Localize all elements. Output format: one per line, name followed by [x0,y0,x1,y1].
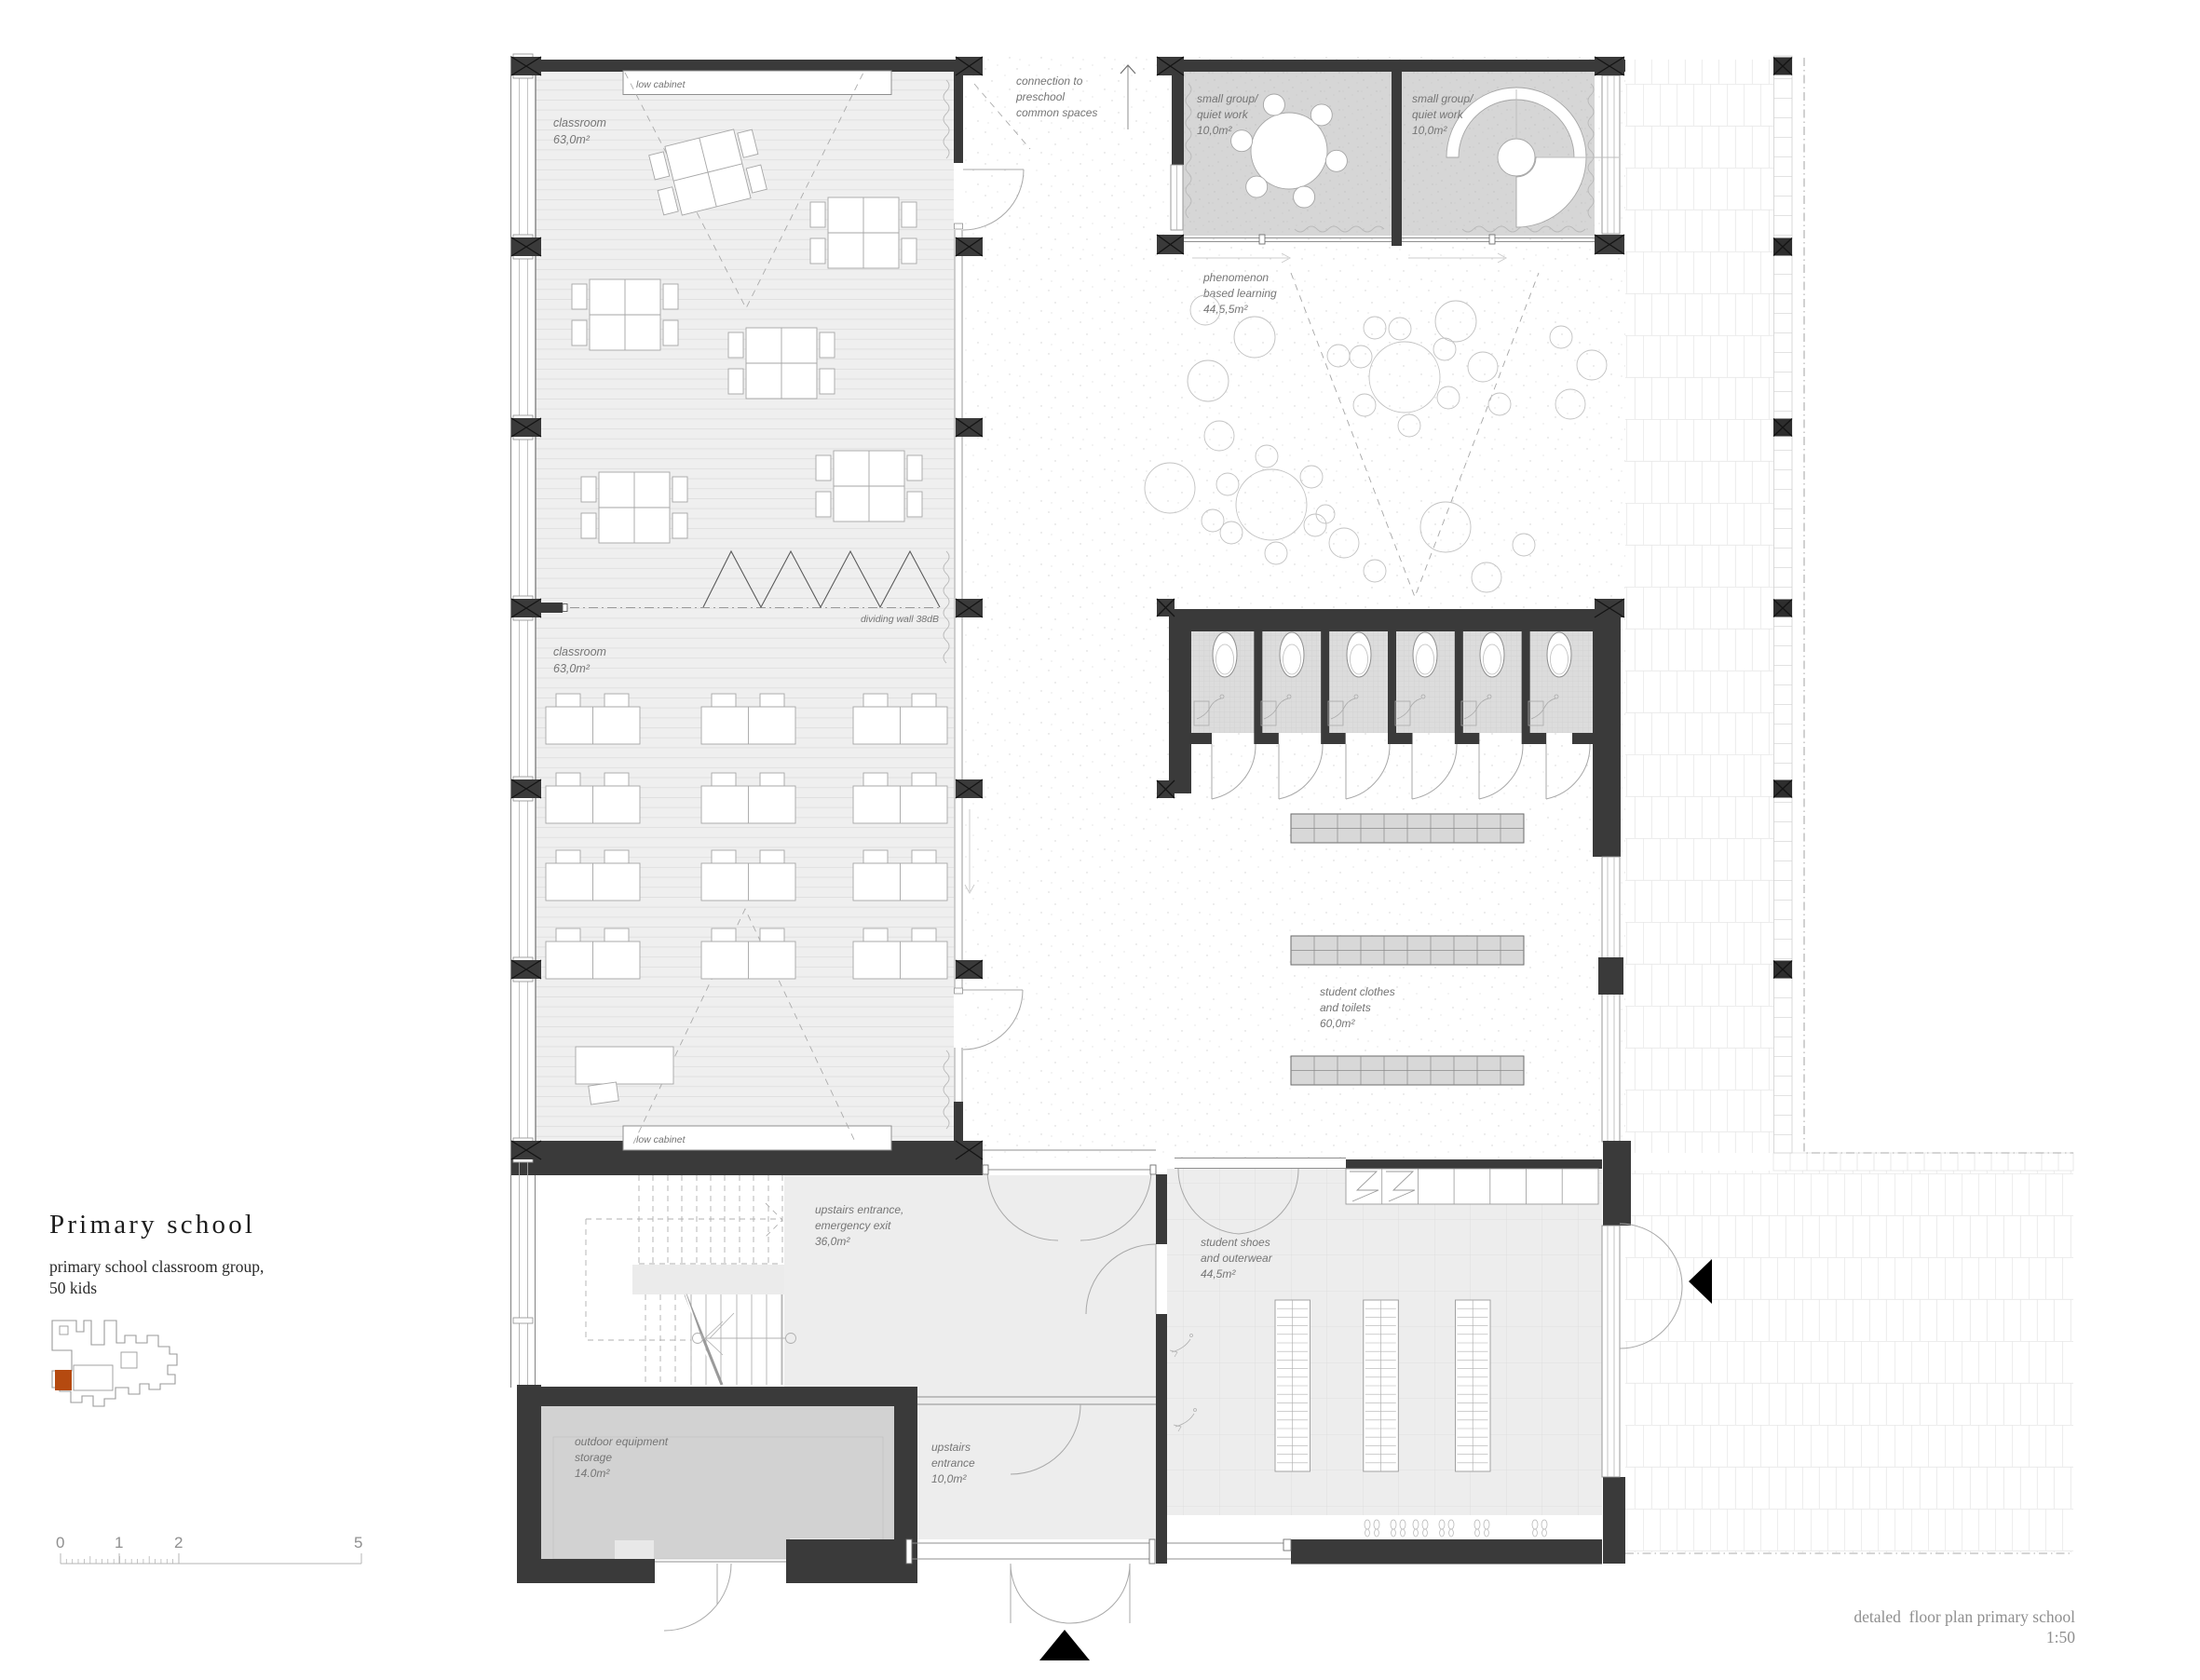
svg-text:connection to: connection to [1016,75,1083,88]
svg-text:low cabinet: low cabinet [636,79,686,90]
svg-text:student clothes: student clothes [1320,985,1395,998]
svg-text:Primary school: Primary school [49,1210,255,1240]
svg-text:student shoes: student shoes [1201,1236,1270,1249]
svg-text:14.0m²: 14.0m² [575,1467,610,1480]
svg-text:63,0m²: 63,0m² [553,662,591,675]
svg-text:common spaces: common spaces [1016,106,1097,119]
svg-text:detaled floor plan primary sc: detaled floor plan primary school [1854,1607,2075,1626]
svg-text:50 kids: 50 kids [49,1279,97,1297]
svg-text:1:50: 1:50 [2046,1628,2075,1646]
svg-text:10,0m²: 10,0m² [1197,124,1232,137]
svg-text:upstairs entrance,: upstairs entrance, [815,1203,903,1216]
svg-text:emergency exit: emergency exit [815,1219,891,1232]
svg-text:outdoor equipment: outdoor equipment [575,1435,669,1448]
svg-text:60,0m²: 60,0m² [1320,1017,1355,1030]
svg-text:10,0m²: 10,0m² [931,1472,967,1485]
svg-text:primary school classroom group: primary school classroom group, [49,1257,264,1276]
svg-text:low cabinet: low cabinet [636,1134,686,1145]
svg-text:5: 5 [354,1534,362,1551]
svg-text:small group/: small group/ [1197,92,1259,105]
svg-text:1: 1 [115,1534,123,1551]
svg-text:upstairs: upstairs [931,1441,971,1454]
svg-text:storage: storage [575,1451,612,1464]
svg-text:63,0m²: 63,0m² [553,133,591,146]
svg-text:entrance: entrance [931,1456,975,1470]
svg-text:classroom: classroom [553,645,606,658]
svg-text:2: 2 [174,1534,183,1551]
svg-text:44,5m²: 44,5m² [1201,1267,1236,1280]
svg-text:dividing wall 38dB: dividing wall 38dB [861,614,939,625]
svg-text:quiet work: quiet work [1412,108,1464,121]
svg-text:classroom: classroom [553,116,606,129]
svg-text:10,0m²: 10,0m² [1412,124,1447,137]
svg-text:44,5,5m²: 44,5,5m² [1203,303,1248,316]
svg-text:preschool: preschool [1015,90,1065,103]
svg-text:small group/: small group/ [1412,92,1474,105]
svg-text:and outerwear: and outerwear [1201,1252,1273,1265]
svg-text:quiet work: quiet work [1197,108,1249,121]
svg-text:phenomenon: phenomenon [1202,271,1269,284]
svg-text:and toilets: and toilets [1320,1001,1371,1014]
svg-text:36,0m²: 36,0m² [815,1235,850,1248]
svg-text:0: 0 [56,1534,64,1551]
